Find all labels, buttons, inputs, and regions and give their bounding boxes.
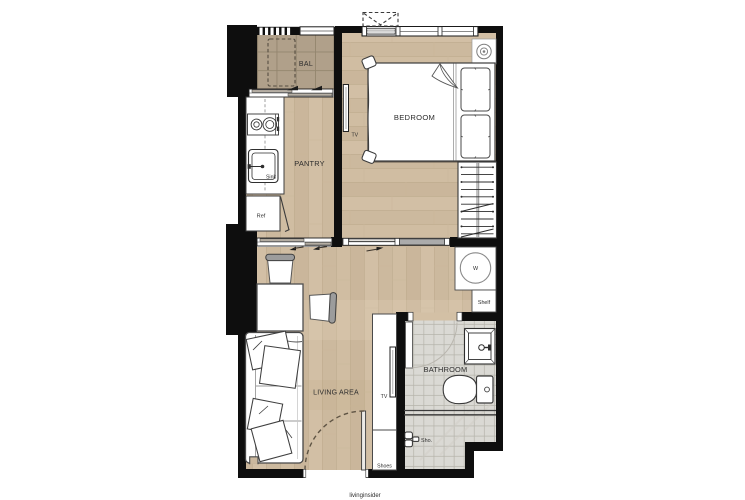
svg-text:BAL: BAL [299, 61, 313, 68]
svg-text:Sink: Sink [266, 175, 276, 181]
svg-text:BEDROOM: BEDROOM [394, 113, 435, 122]
svg-text:LIVING AREA: LIVING AREA [313, 390, 359, 397]
svg-text:Shelf: Shelf [478, 300, 491, 306]
svg-text:BATHROOM: BATHROOM [424, 365, 468, 374]
svg-text:Ref: Ref [257, 214, 266, 220]
svg-text:Shoes: Shoes [377, 464, 392, 470]
svg-text:PANTRY: PANTRY [294, 159, 325, 168]
svg-text:Sho.: Sho. [421, 438, 432, 444]
svg-text:livinginsider: livinginsider [349, 493, 380, 499]
svg-text:TV: TV [381, 394, 388, 400]
svg-text:TV: TV [352, 133, 359, 139]
